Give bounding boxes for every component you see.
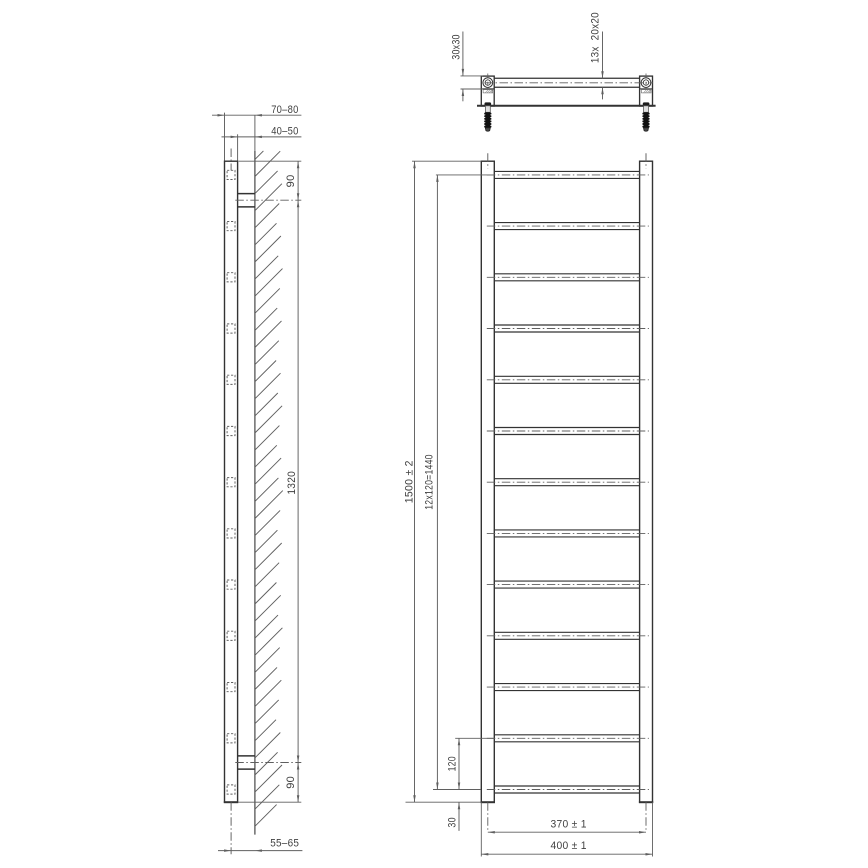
svg-text:30: 30 (447, 817, 459, 827)
svg-text:70–80: 70–80 (271, 104, 298, 116)
svg-text:90: 90 (285, 174, 297, 187)
svg-text:55–65: 55–65 (270, 838, 299, 850)
svg-text:370 ± 1: 370 ± 1 (550, 819, 586, 831)
svg-text:30x30: 30x30 (451, 34, 463, 60)
svg-text:1500 ± 2: 1500 ± 2 (403, 460, 415, 503)
svg-text:120: 120 (447, 756, 459, 771)
svg-text:12x120=1440: 12x120=1440 (424, 454, 436, 510)
svg-text:1320: 1320 (286, 471, 298, 495)
svg-text:13x 20x20: 13x 20x20 (590, 12, 602, 63)
svg-text:40–50: 40–50 (271, 126, 298, 138)
svg-text:400 ± 1: 400 ± 1 (550, 840, 586, 852)
svg-text:90: 90 (285, 776, 297, 789)
